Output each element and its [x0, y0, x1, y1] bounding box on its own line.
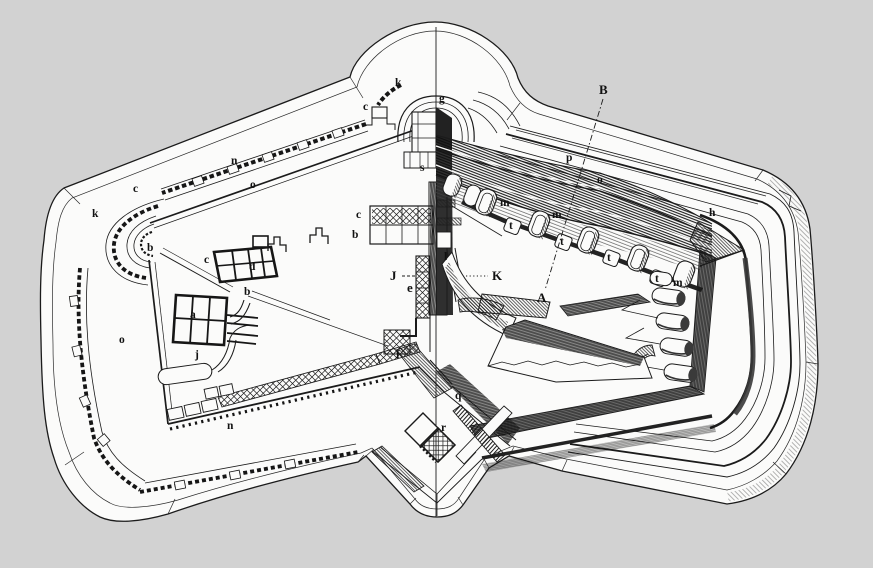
- svg-text:k: k: [395, 77, 402, 89]
- svg-text:p: p: [566, 152, 572, 164]
- svg-text:k: k: [92, 208, 99, 220]
- svg-text:m: m: [552, 209, 562, 221]
- svg-text:n: n: [227, 420, 234, 432]
- svg-text:c: c: [204, 254, 209, 266]
- svg-text:h: h: [709, 207, 716, 219]
- svg-text:b: b: [147, 242, 153, 254]
- svg-text:t: t: [655, 273, 659, 285]
- svg-text:c: c: [363, 101, 368, 113]
- svg-text:a: a: [190, 309, 196, 321]
- svg-text:d: d: [249, 261, 256, 273]
- svg-text:m: m: [500, 197, 510, 209]
- svg-text:o: o: [597, 174, 603, 186]
- svg-text:c: c: [356, 209, 361, 221]
- svg-text:B: B: [599, 82, 608, 97]
- svg-text:b: b: [352, 229, 358, 241]
- svg-text:e: e: [407, 280, 413, 295]
- svg-text:q: q: [455, 390, 462, 402]
- svg-text:t: t: [509, 220, 513, 232]
- svg-text:c: c: [133, 183, 138, 195]
- svg-text:l: l: [444, 251, 447, 263]
- svg-text:g: g: [439, 93, 445, 105]
- svg-text:o: o: [250, 179, 256, 191]
- svg-text:K: K: [492, 268, 503, 283]
- svg-text:A: A: [537, 290, 547, 305]
- svg-text:j: j: [194, 349, 199, 361]
- svg-text:b: b: [244, 286, 250, 298]
- svg-text:t: t: [607, 252, 611, 264]
- svg-text:r: r: [441, 422, 446, 434]
- svg-text:m: m: [673, 277, 683, 289]
- svg-text:s: s: [420, 162, 425, 174]
- svg-text:t: t: [560, 236, 564, 248]
- svg-text:J: J: [390, 268, 397, 283]
- svg-text:o: o: [119, 334, 125, 346]
- svg-text:f: f: [396, 349, 400, 361]
- svg-text:n: n: [231, 155, 238, 167]
